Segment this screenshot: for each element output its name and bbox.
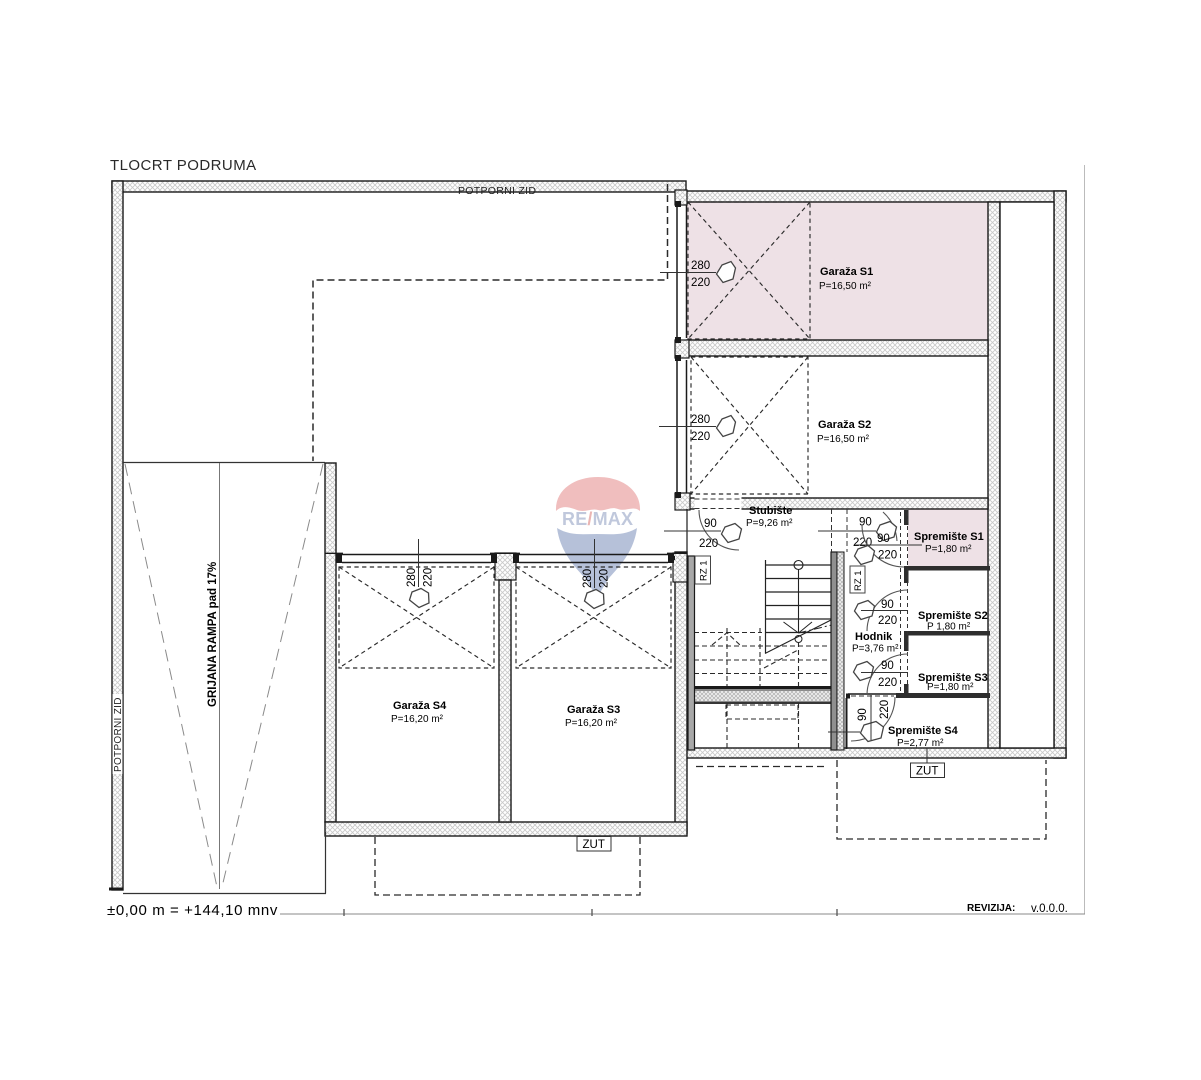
svg-text:POTPORNI ZID: POTPORNI ZID xyxy=(458,185,536,197)
svg-text:90: 90 xyxy=(859,517,872,529)
svg-text:±0,00 m = +144,10 mnv: ±0,00 m = +144,10 mnv xyxy=(107,902,278,919)
svg-text:Garaža S2: Garaža S2 xyxy=(818,419,871,431)
svg-text:220: 220 xyxy=(691,431,710,443)
svg-text:220: 220 xyxy=(878,615,897,627)
svg-text:POTPORNI ZID: POTPORNI ZID xyxy=(113,697,124,772)
svg-text:280: 280 xyxy=(406,568,418,587)
svg-text:P=2,77 m²: P=2,77 m² xyxy=(897,738,944,749)
svg-text:RZ 1: RZ 1 xyxy=(699,560,710,581)
svg-text:220: 220 xyxy=(878,550,897,562)
svg-text:REVIZIJA:: REVIZIJA: xyxy=(967,903,1015,914)
svg-text:90: 90 xyxy=(881,599,894,611)
svg-text:P=1,80 m²: P=1,80 m² xyxy=(925,544,972,555)
svg-text:280: 280 xyxy=(582,569,594,588)
svg-text:P 1,80 m²: P 1,80 m² xyxy=(927,622,971,633)
svg-text:220: 220 xyxy=(599,569,611,588)
svg-text:Spremište S2: Spremište S2 xyxy=(918,610,988,622)
svg-text:RE/MAX: RE/MAX xyxy=(562,509,633,529)
svg-text:Stubište: Stubište xyxy=(749,505,792,517)
svg-text:Garaža S1: Garaža S1 xyxy=(820,266,873,278)
svg-text:P=16,50 m²: P=16,50 m² xyxy=(819,281,872,292)
svg-text:90: 90 xyxy=(877,533,890,545)
svg-text:220: 220 xyxy=(691,277,710,289)
svg-text:220: 220 xyxy=(878,677,897,689)
svg-text:P=1,80 m²: P=1,80 m² xyxy=(927,682,974,693)
svg-text:Hodnik: Hodnik xyxy=(855,631,893,643)
svg-text:RZ 1: RZ 1 xyxy=(853,570,864,591)
svg-text:P=16,20 m²: P=16,20 m² xyxy=(565,718,618,729)
svg-text:220: 220 xyxy=(423,568,435,587)
svg-text:TLOCRT PODRUMA: TLOCRT PODRUMA xyxy=(110,157,257,174)
svg-text:90: 90 xyxy=(704,518,717,530)
svg-text:ZUT: ZUT xyxy=(916,766,938,778)
svg-text:280: 280 xyxy=(691,260,710,272)
svg-text:ZUT: ZUT xyxy=(583,839,605,851)
svg-text:Spremište S1: Spremište S1 xyxy=(914,531,984,543)
svg-text:220: 220 xyxy=(699,538,718,550)
svg-text:P=9,26 m²: P=9,26 m² xyxy=(746,518,793,529)
svg-text:280: 280 xyxy=(691,414,710,426)
svg-text:Garaža S4: Garaža S4 xyxy=(393,700,447,712)
svg-text:90: 90 xyxy=(857,708,869,721)
svg-text:220: 220 xyxy=(879,700,891,719)
svg-text:P=3,76 m²: P=3,76 m² xyxy=(852,644,899,655)
svg-text:GRIJANA RAMPA pad 17%: GRIJANA RAMPA pad 17% xyxy=(207,562,219,707)
svg-text:Spremište S4: Spremište S4 xyxy=(888,725,959,737)
svg-text:90: 90 xyxy=(881,660,894,672)
svg-text:P=16,20 m²: P=16,20 m² xyxy=(391,714,444,725)
svg-text:v.0.0.0.: v.0.0.0. xyxy=(1031,903,1068,915)
svg-text:P=16,50 m²: P=16,50 m² xyxy=(817,434,870,445)
svg-text:Garaža S3: Garaža S3 xyxy=(567,704,620,716)
